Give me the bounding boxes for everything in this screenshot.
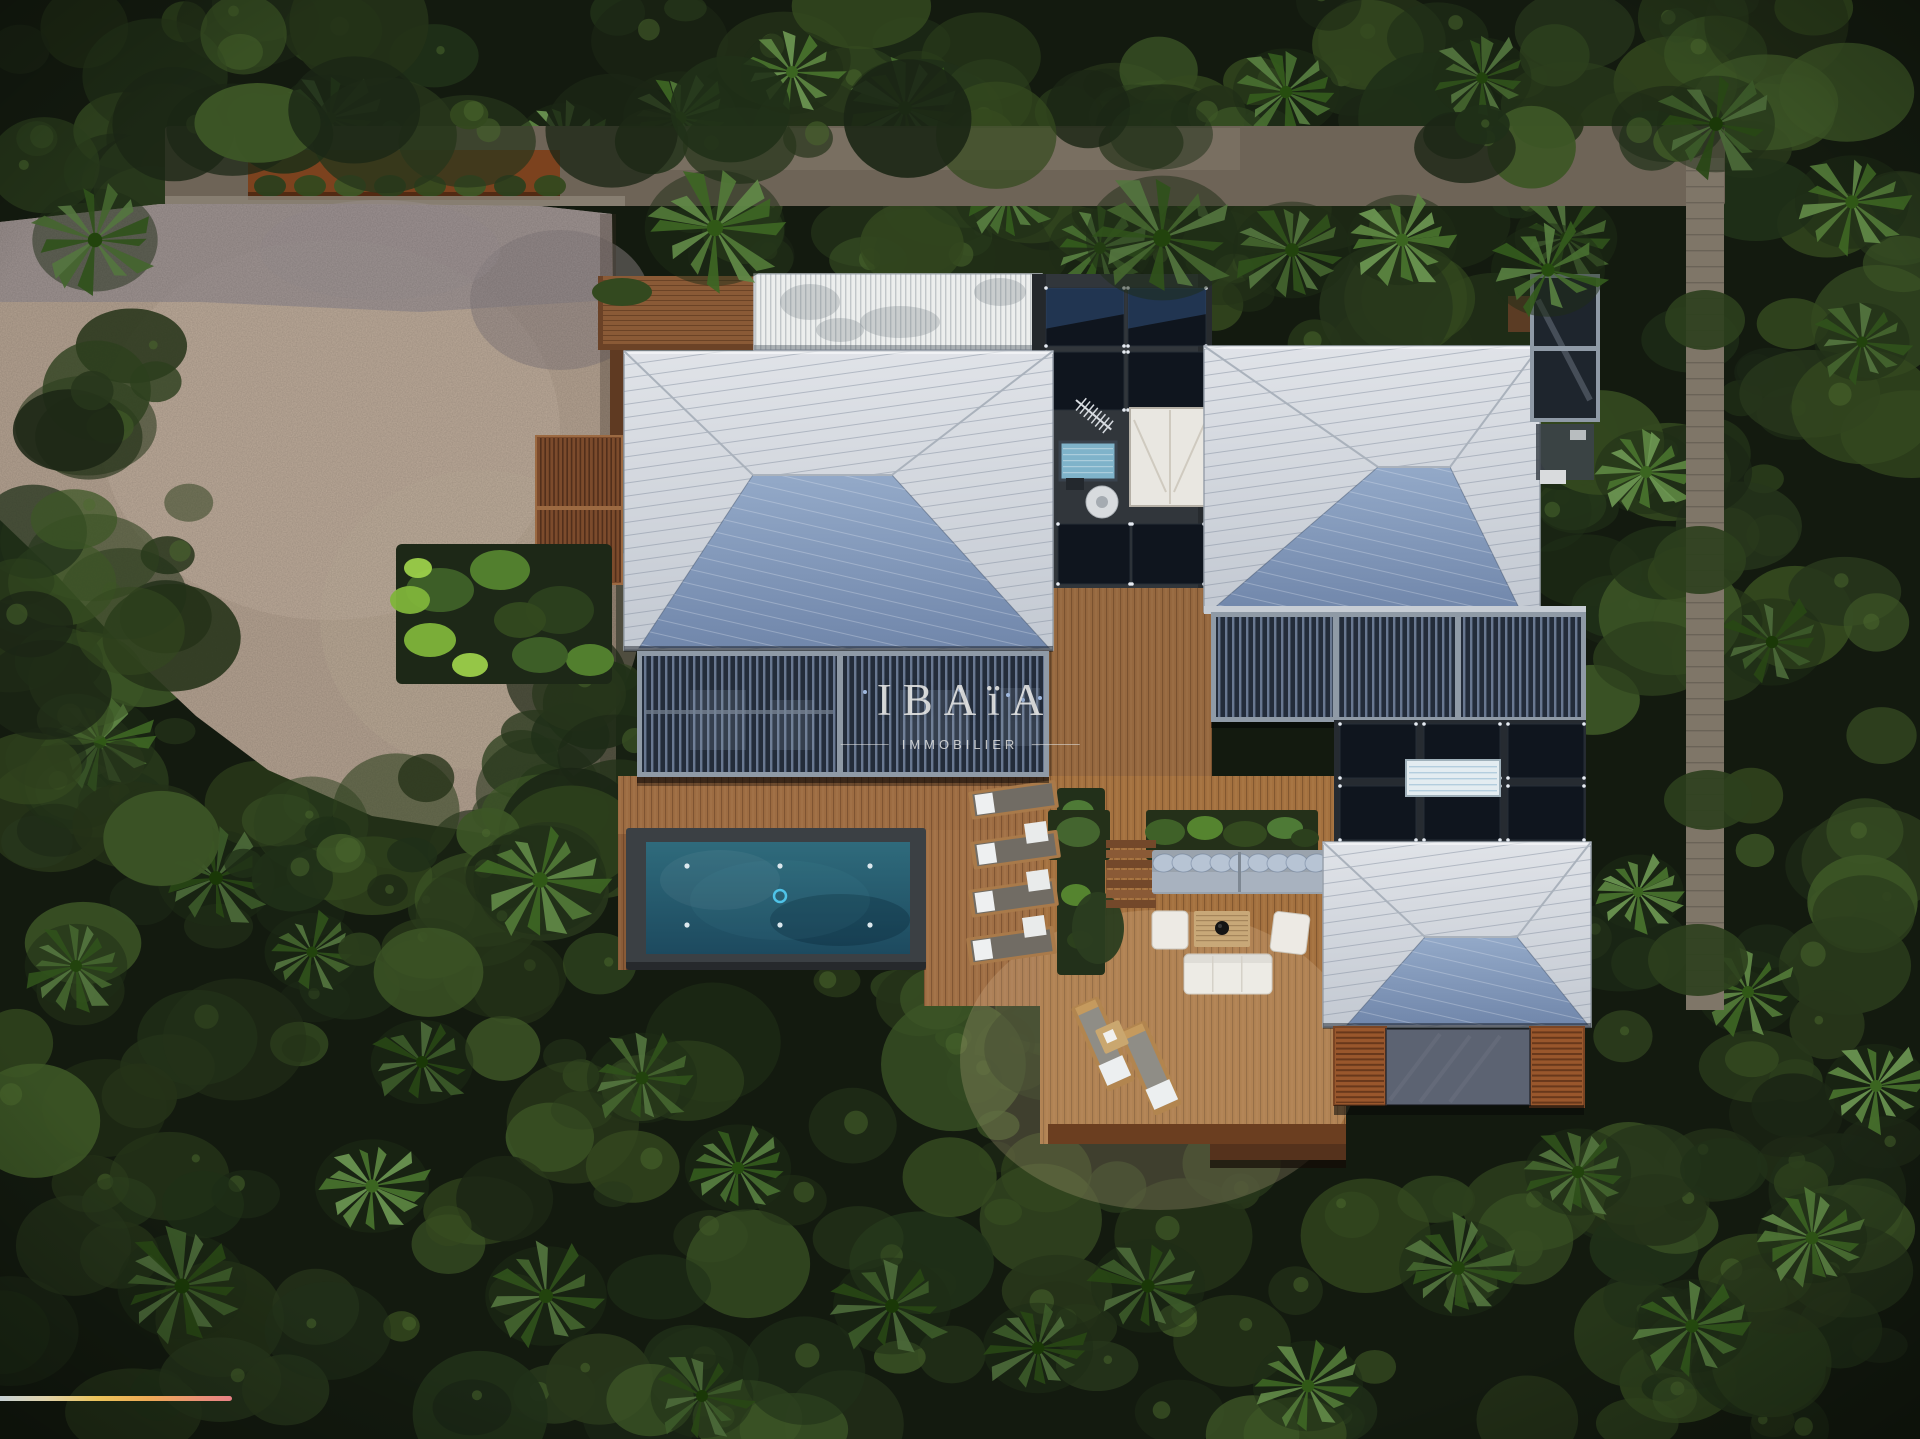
aerial-villa-photo: IBAïA IMMOBILIER <box>0 0 1920 1439</box>
brand-gradient-bar <box>0 1396 232 1401</box>
vignette <box>0 0 1920 1439</box>
aerial-scene <box>0 0 1920 1439</box>
